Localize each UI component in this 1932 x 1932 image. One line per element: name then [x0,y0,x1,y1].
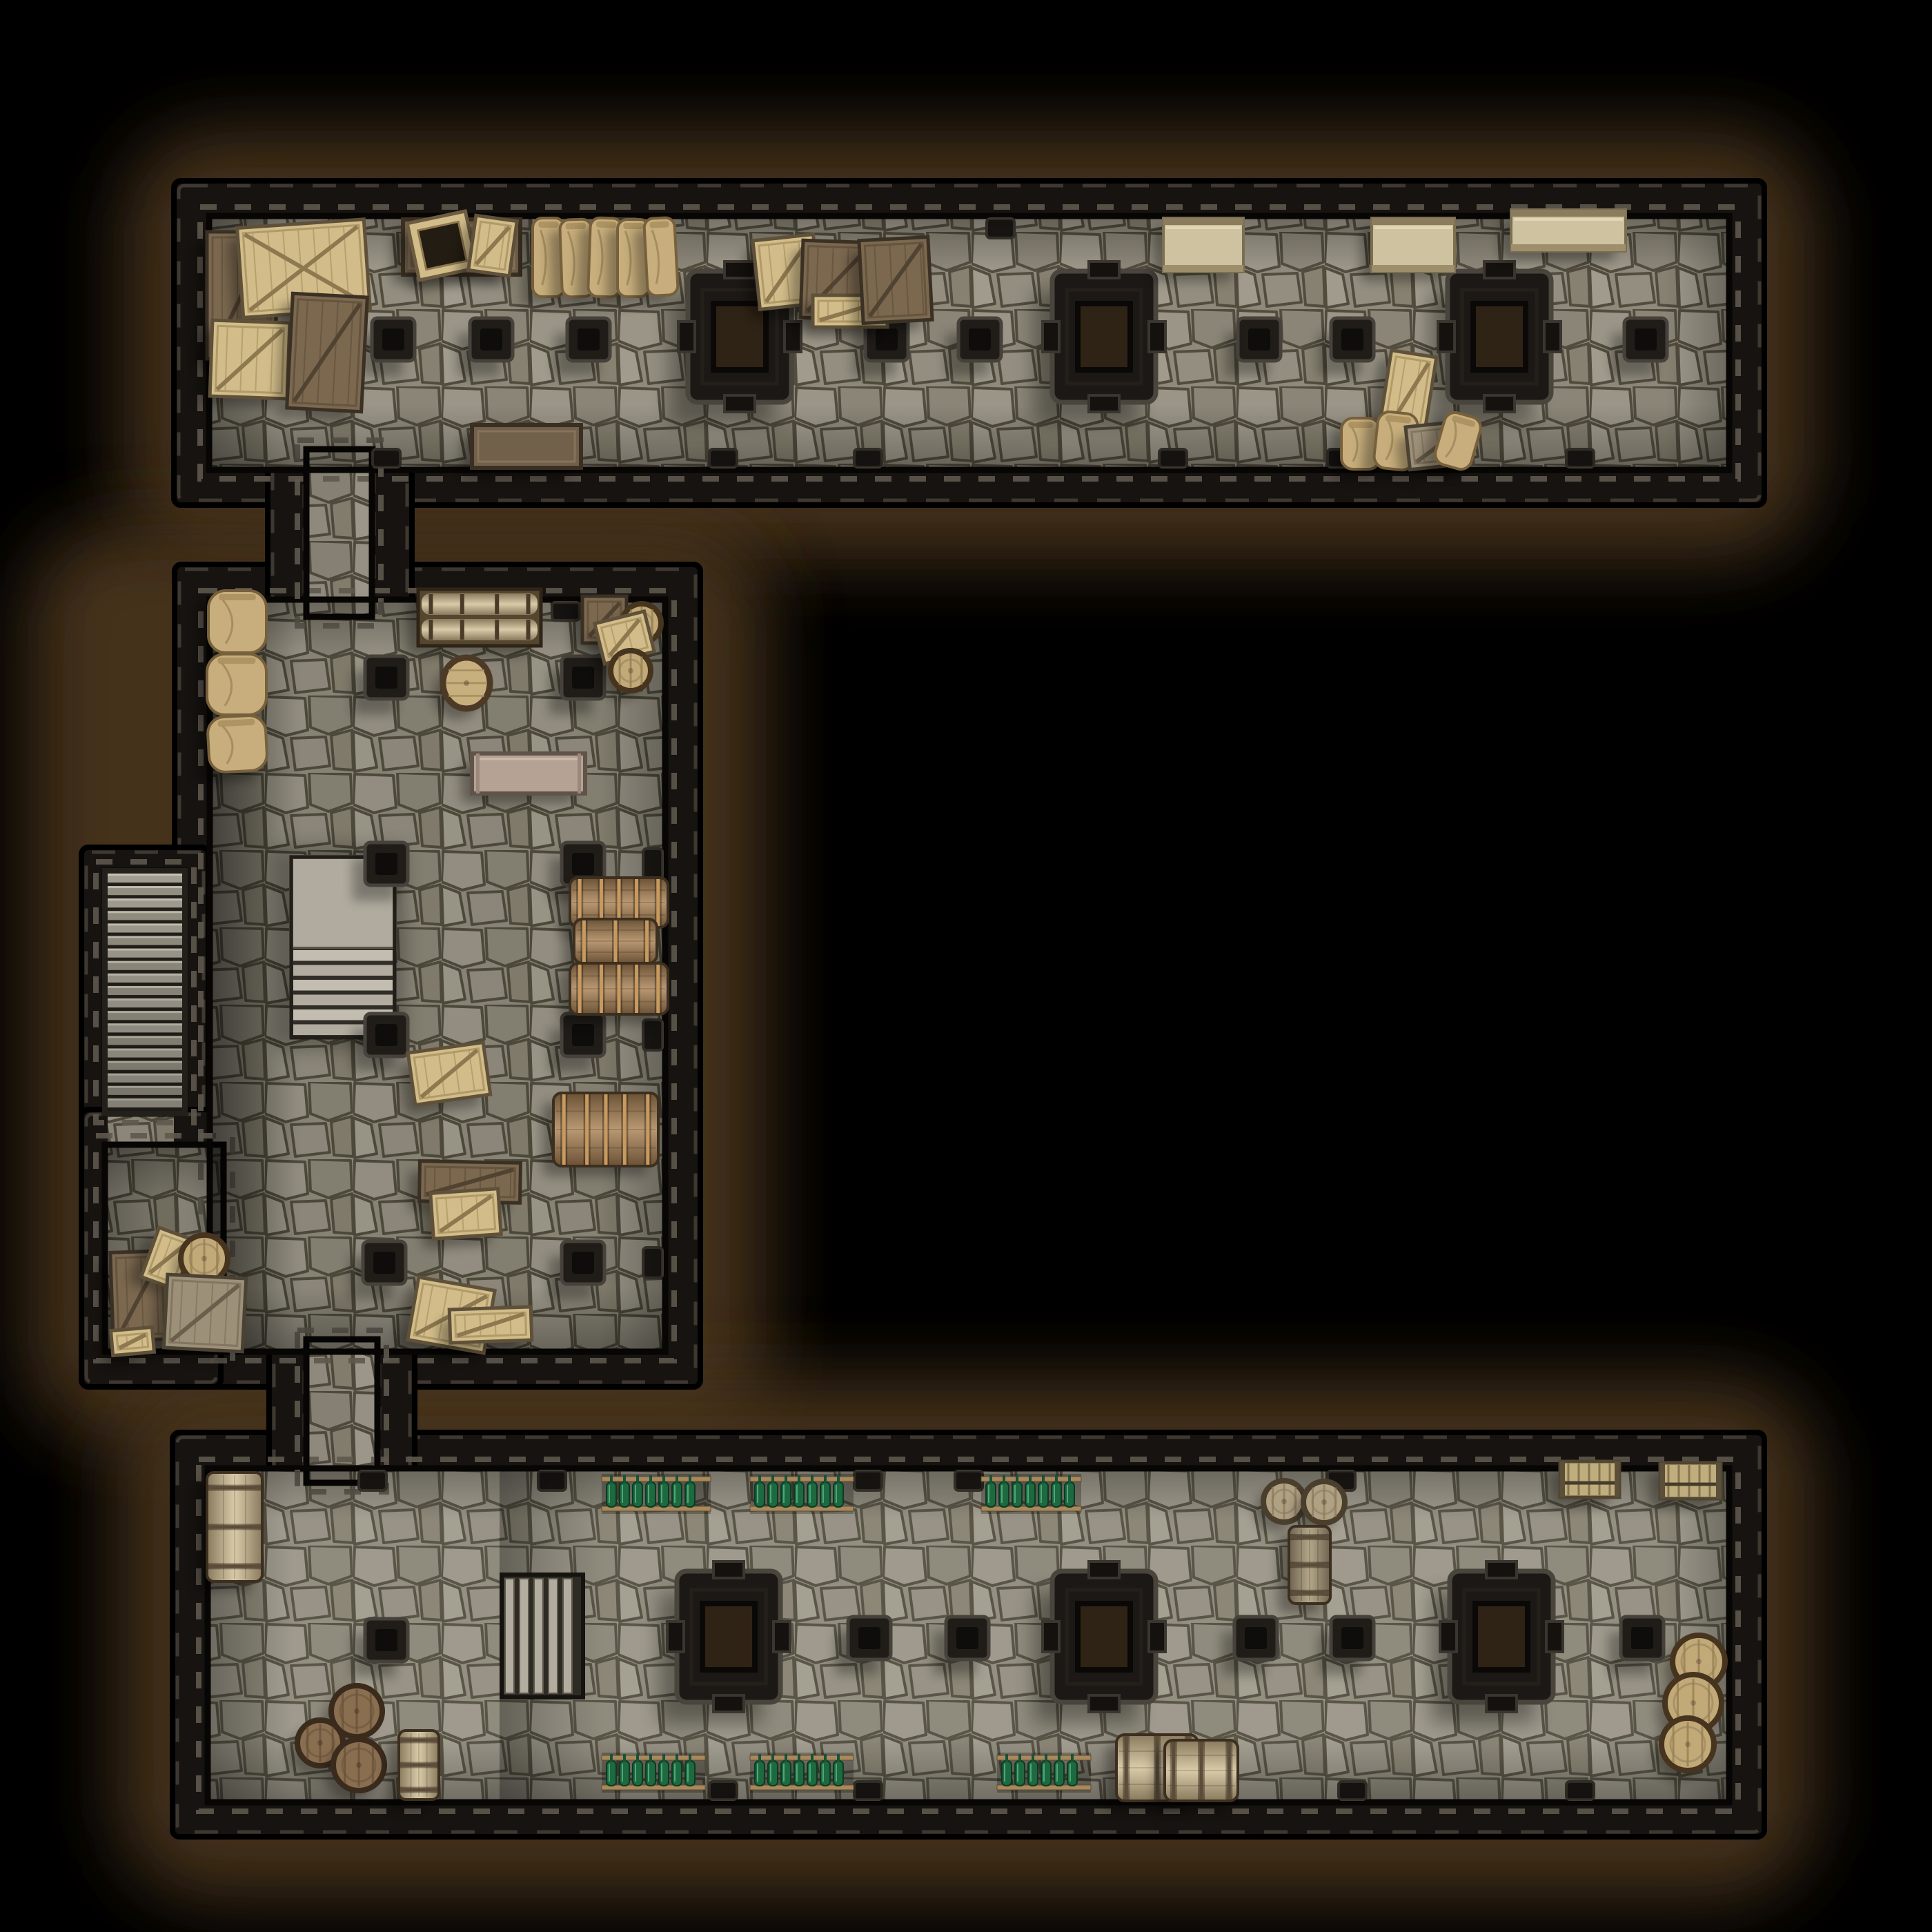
supply-sack [196,654,266,724]
supply-sack [633,217,679,306]
barrel [196,1472,262,1591]
barrel [1154,1740,1238,1811]
corridor-north-wall [369,461,412,607]
wine-bottle-rack [981,1474,1081,1514]
floor-grate [502,1575,583,1697]
barrel [542,1093,658,1176]
wooden-crate [152,1274,246,1361]
wine-bottle-rack [997,1753,1091,1793]
wooden-crate [420,1189,502,1250]
wine-bottle-rack [602,1753,705,1793]
stone-table [461,753,585,803]
pillar-large [1430,262,1561,423]
barrel-rack [407,589,541,655]
barrel [388,1731,439,1809]
pillar-large [1034,262,1165,423]
wooden-crate [275,293,367,421]
storage-shelf [1361,218,1455,282]
barrel [1278,1526,1330,1613]
wooden-crate [848,237,933,333]
barrel [559,963,668,1024]
north-hall-shade-right [1664,219,1726,467]
supply-sack [197,591,266,662]
wooden-crate [438,1307,532,1353]
wine-bottle-rack [750,1753,854,1793]
wine-bottle-rack [602,1474,711,1514]
wooden-crate [199,320,290,408]
storage-shelf [1500,210,1626,261]
corridor-north-wall [268,461,309,607]
pillar-large [1432,1561,1563,1723]
dungeon-map[interactable] [0,0,1932,1932]
pillar-large [659,1561,790,1723]
storage-shelf [1152,218,1243,282]
staircase [102,868,188,1116]
pillar-large [1034,1561,1165,1723]
south-hall-shade-top [210,1471,1726,1519]
dark-table [461,425,581,477]
wine-bottle-rack [750,1474,854,1514]
